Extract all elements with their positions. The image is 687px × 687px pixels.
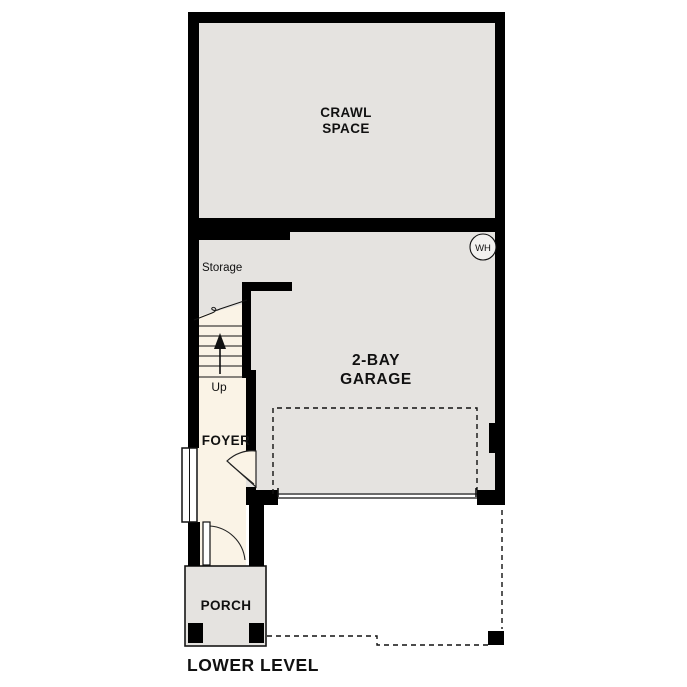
crawl-space-label-line1: CRAWL [320,105,372,120]
storage-label: Storage [202,262,242,274]
window [182,448,197,522]
wall-right-pilaster [489,423,495,453]
wall-top [188,12,505,23]
water-heater-badge: WH [470,234,496,260]
wall-crawl-bottom-ext [188,232,290,240]
crawl-space-label-line2: SPACE [322,121,370,136]
floor-plan-page: WH CRAWL SPACE 2-BAY GARAGE Storage Up F… [0,0,687,687]
wall-porch-right-column [249,505,264,566]
porch-label: PORCH [201,598,252,613]
porch-post-right [249,623,264,643]
foyer-label: FOYER [202,433,251,448]
wall-stairs-right [242,282,251,377]
driveway-dashed-outline [267,510,504,645]
stairs-up-label: Up [211,380,227,394]
wall-crawl-bottom [188,218,505,232]
wall-stairs-corner [242,370,256,378]
floor-plan-svg: WH CRAWL SPACE 2-BAY GARAGE Storage Up F… [0,0,687,687]
water-heater-label: WH [475,243,491,254]
wall-left-lower [188,522,200,566]
porch-post-left [188,623,203,643]
plan-title: LOWER LEVEL [187,655,319,675]
wall-right [495,12,505,505]
wall-garage-door-right-block [477,490,505,505]
garage-label-line2: GARAGE [340,371,412,388]
garage-label-line1: 2-BAY [352,352,400,369]
